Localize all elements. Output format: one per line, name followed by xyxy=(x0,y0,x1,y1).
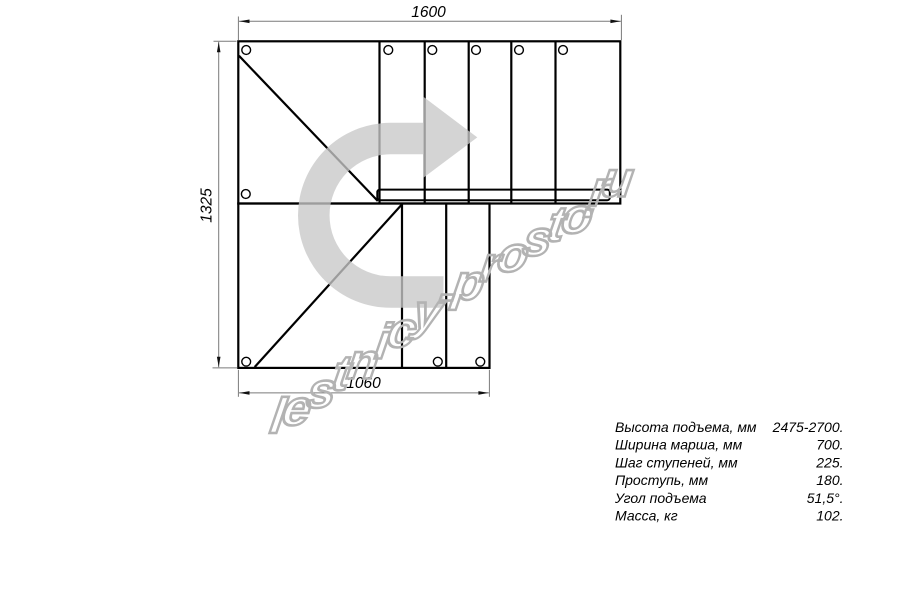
svg-text:Масса, кг: Масса, кг xyxy=(615,508,678,524)
svg-text:Высота подъема, мм: Высота подъема, мм xyxy=(615,419,757,435)
svg-text:Угол подъема: Угол подъема xyxy=(614,490,707,506)
svg-text:2475-2700.: 2475-2700. xyxy=(772,419,844,435)
svg-text:Ширина марша, мм: Ширина марша, мм xyxy=(615,437,743,453)
svg-text:225.: 225. xyxy=(815,454,843,470)
svg-text:1600: 1600 xyxy=(411,4,446,21)
svg-text:180.: 180. xyxy=(816,472,843,488)
svg-text:700.: 700. xyxy=(816,437,843,453)
svg-text:51,5°.: 51,5°. xyxy=(807,490,844,506)
svg-text:1325: 1325 xyxy=(199,188,216,223)
svg-text:Проступь, мм: Проступь, мм xyxy=(615,472,709,488)
svg-text:Шаг ступеней, мм: Шаг ступеней, мм xyxy=(615,454,738,470)
svg-text:102.: 102. xyxy=(816,508,843,524)
